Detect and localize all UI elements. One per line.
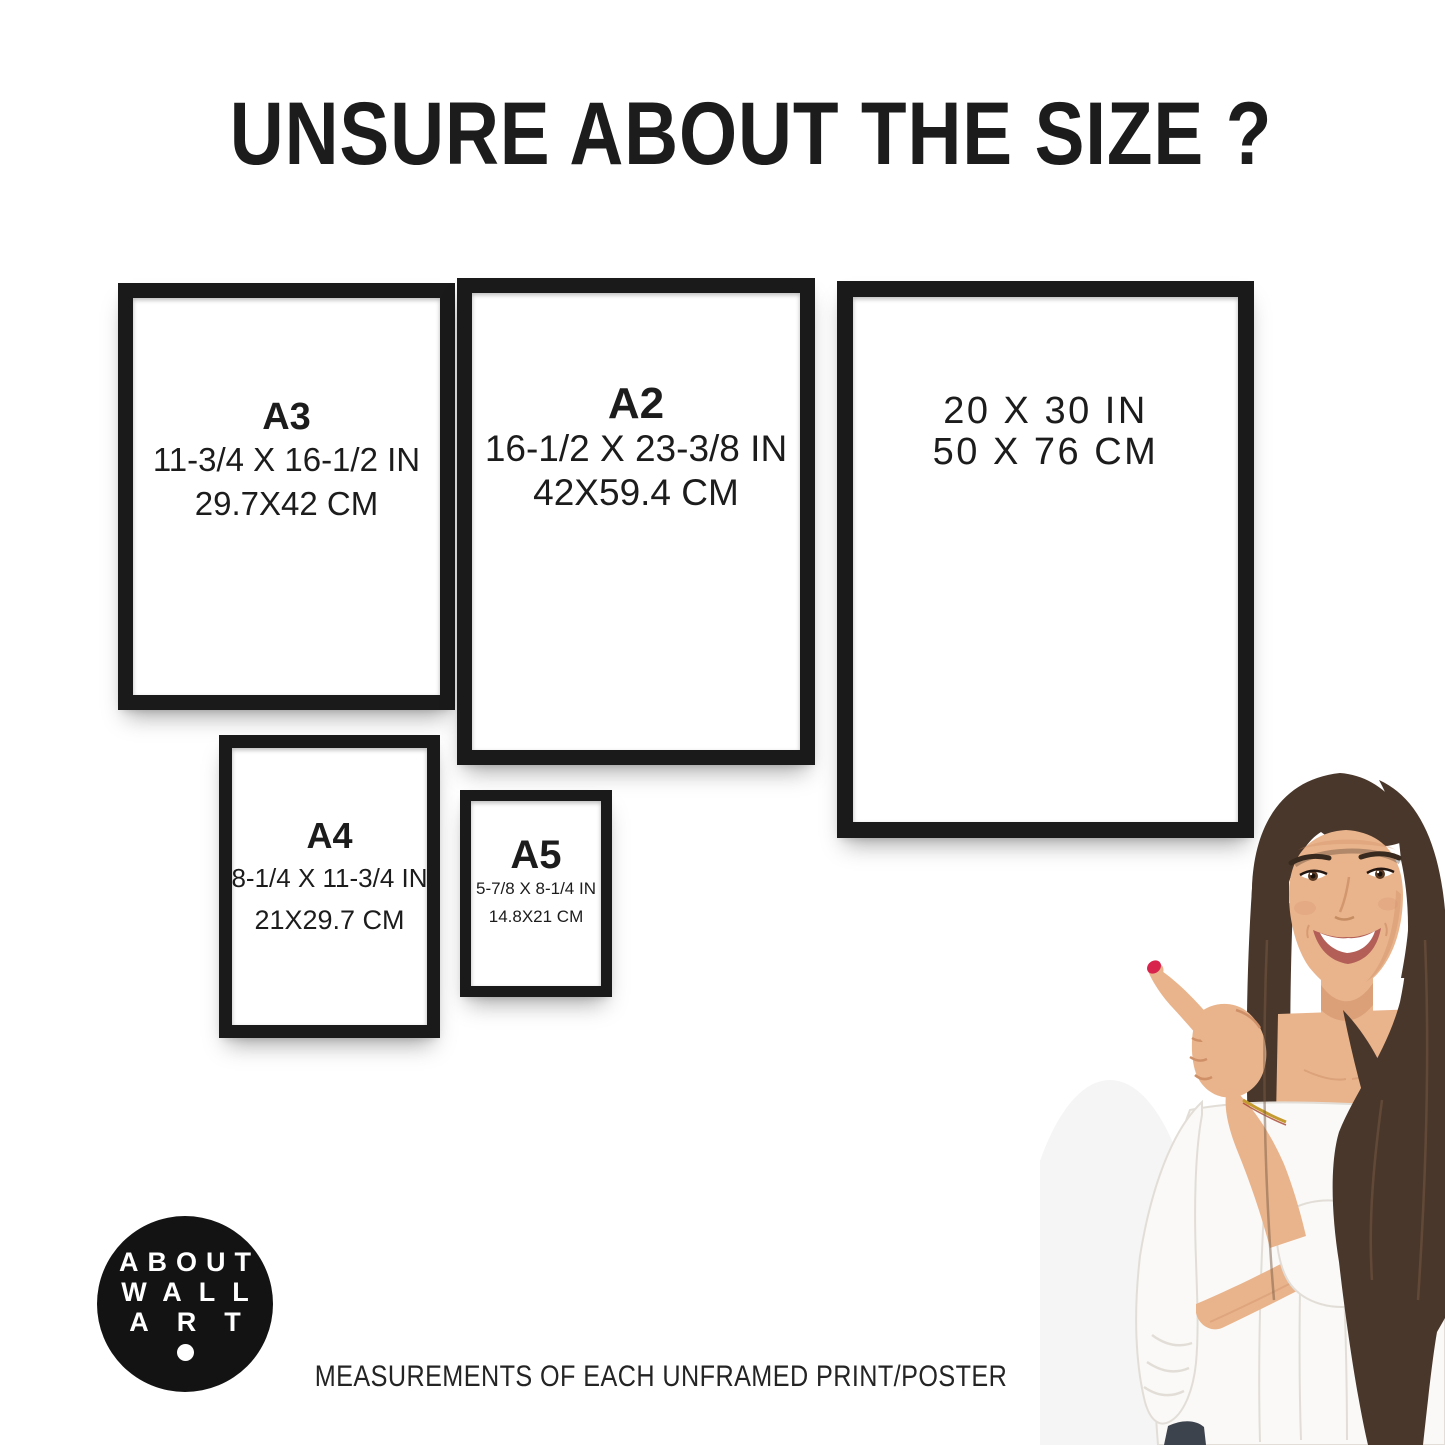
- frame-a4-size-inches: 8-1/4 X 11-3/4 IN: [231, 863, 427, 894]
- frame-a4: A4 8-1/4 X 11-3/4 IN 21X29.7 CM: [219, 735, 440, 1038]
- woman-pointing-illustration: [1040, 770, 1445, 1445]
- frame-a5-size-name: A5: [510, 834, 561, 876]
- frame-20x30-size-inches: 20 X 30 IN: [943, 391, 1148, 432]
- page-title: UNSURE ABOUT THE SIZE ?: [230, 82, 1272, 185]
- frame-a2: A2 16-1/2 X 23-3/8 IN 42X59.4 CM: [457, 278, 815, 765]
- brand-logo-line-art: ART: [129, 1307, 269, 1337]
- frame-a2-size-cm: 42X59.4 CM: [533, 471, 739, 515]
- brand-logo-line-wall: WALL: [121, 1277, 265, 1307]
- frame-20x30-size-cm: 50 X 76 CM: [933, 432, 1159, 473]
- logo-dot-icon: [177, 1344, 194, 1361]
- frame-a5-size-inches: 5-7/8 X 8-1/4 IN: [476, 879, 596, 899]
- frame-a5: A5 5-7/8 X 8-1/4 IN 14.8X21 CM: [460, 790, 612, 997]
- frame-a3-size-name: A3: [262, 397, 311, 438]
- frame-20x30: 20 X 30 IN 50 X 76 CM: [837, 281, 1254, 838]
- footer-caption: MEASUREMENTS OF EACH UNFRAMED PRINT/POST…: [315, 1360, 1008, 1394]
- brand-logo-line-about: ABOUT: [119, 1247, 260, 1277]
- frame-a4-size-name: A4: [306, 815, 352, 856]
- frame-a2-size-inches: 16-1/2 X 23-3/8 IN: [485, 427, 787, 471]
- frame-a5-size-cm: 14.8X21 CM: [489, 907, 584, 927]
- frame-a3-size-inches: 11-3/4 X 16-1/2 IN: [153, 438, 420, 482]
- frame-a2-size-name: A2: [608, 382, 664, 427]
- frame-a3-size-cm: 29.7X42 CM: [195, 482, 378, 526]
- size-guide-image: UNSURE ABOUT THE SIZE ? A3 11-3/4 X 16-1…: [0, 0, 1445, 1445]
- frame-a4-size-cm: 21X29.7 CM: [254, 904, 404, 936]
- frame-a3: A3 11-3/4 X 16-1/2 IN 29.7X42 CM: [118, 283, 455, 710]
- brand-logo: ABOUT WALL ART: [97, 1216, 273, 1392]
